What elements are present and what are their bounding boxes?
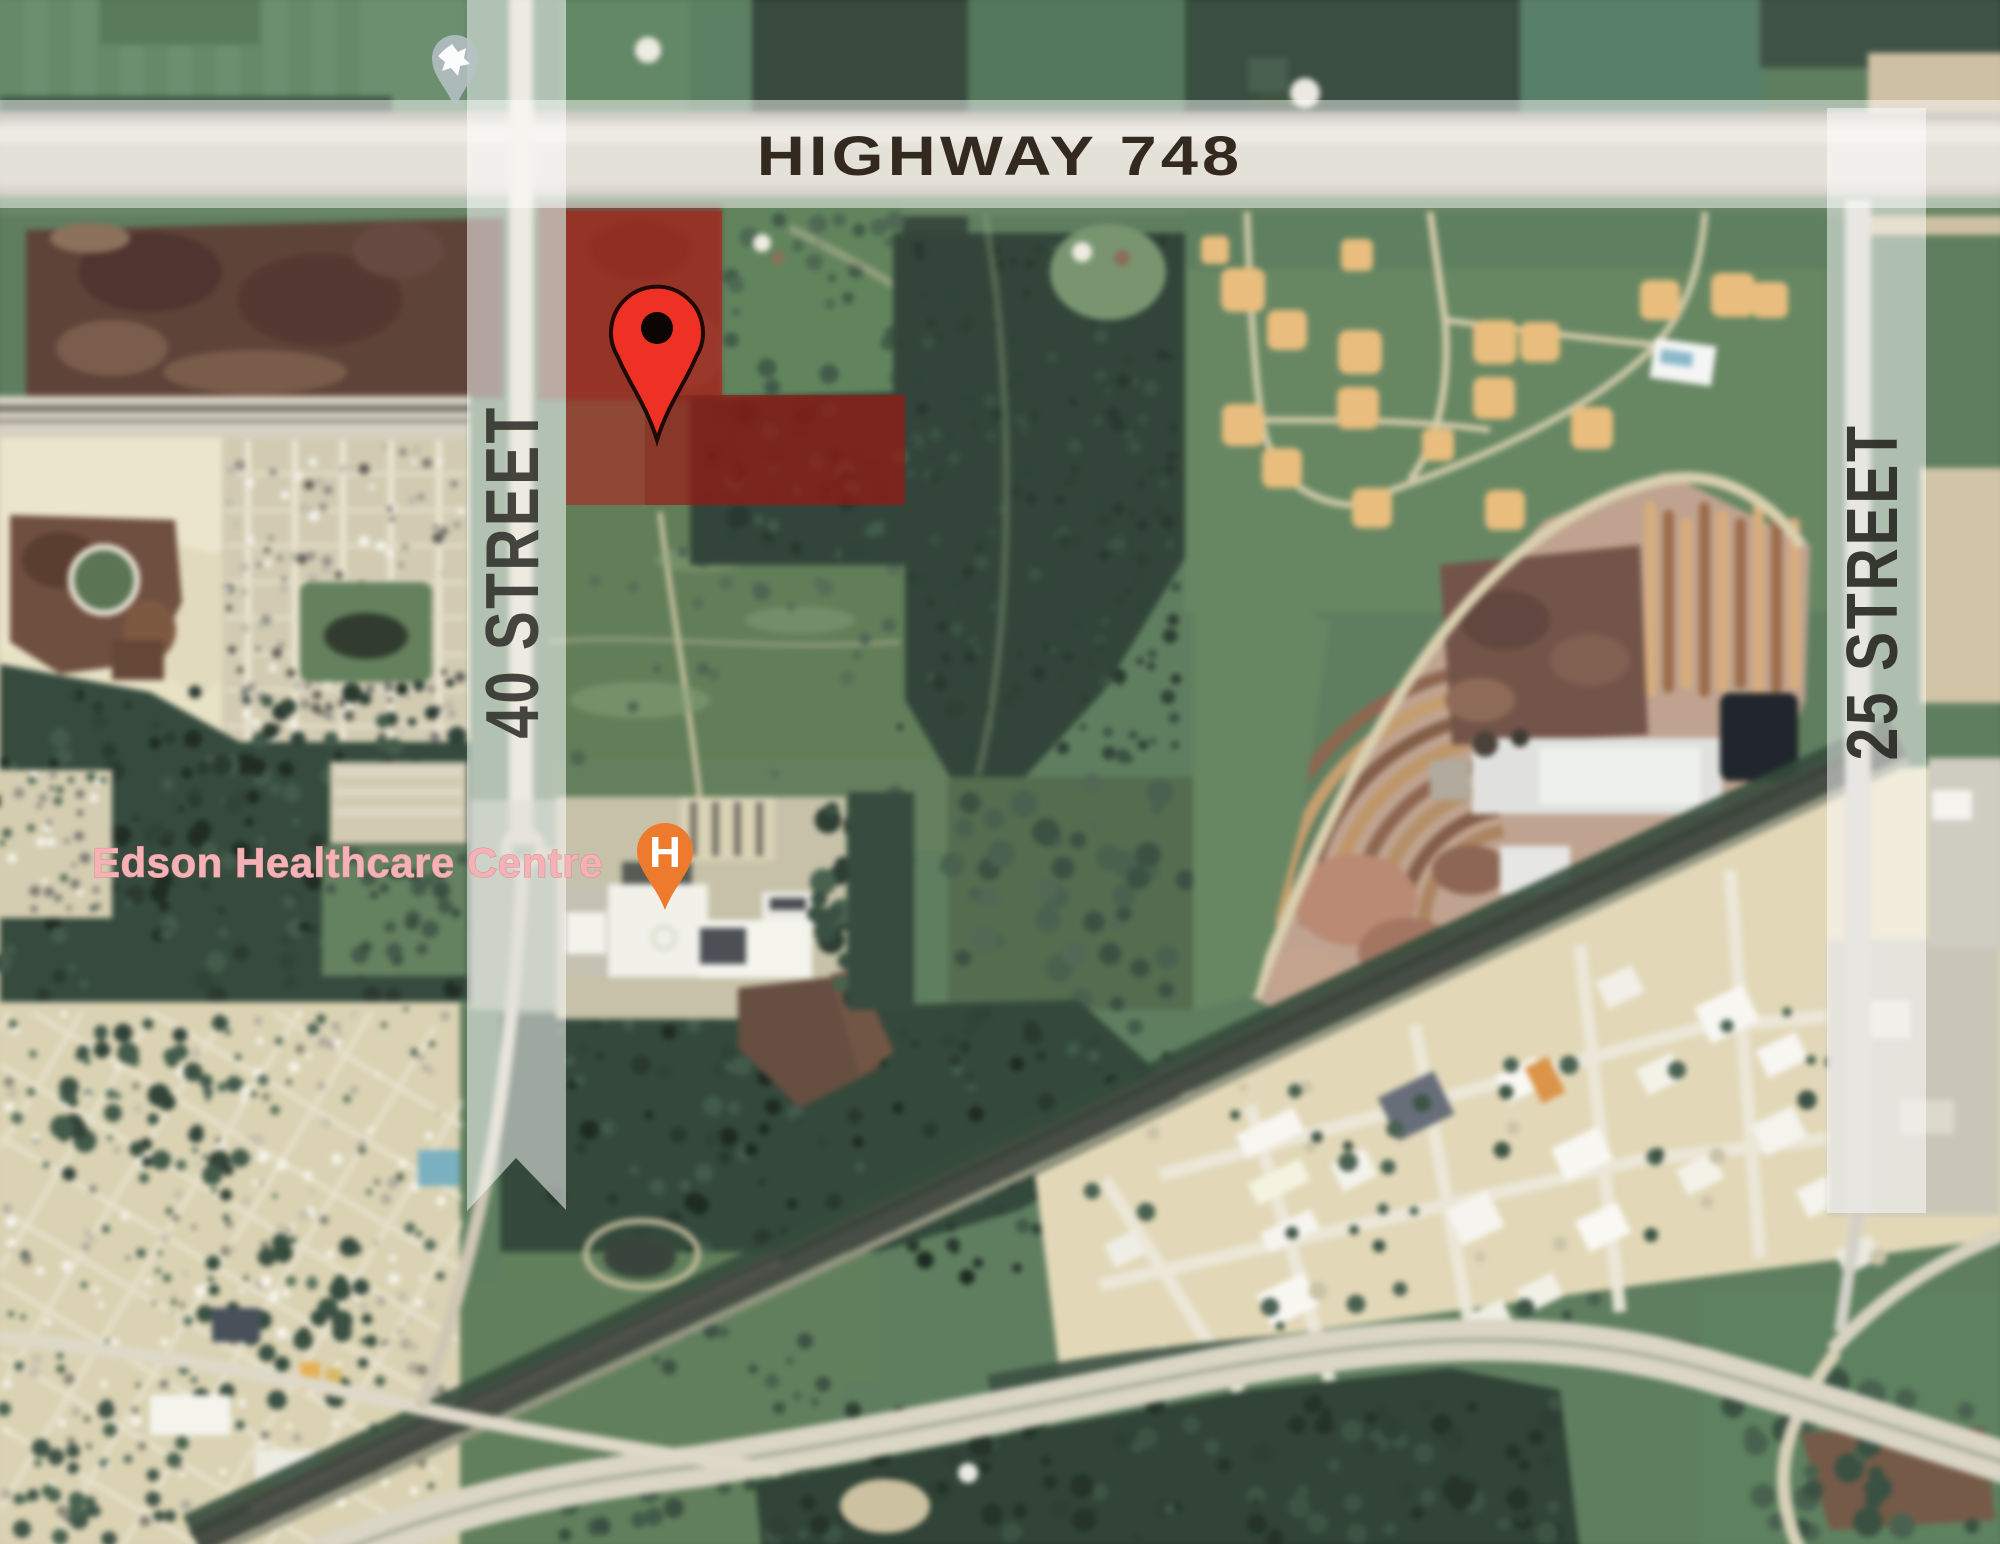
svg-text:Edson Healthcare Centre: Edson Healthcare Centre [92,839,603,886]
svg-text:25 STREET: 25 STREET [1831,423,1912,760]
svg-text:40 STREET: 40 STREET [471,405,555,738]
svg-text:HIGHWAY 748: HIGHWAY 748 [757,125,1244,188]
svg-text:H: H [649,828,681,877]
